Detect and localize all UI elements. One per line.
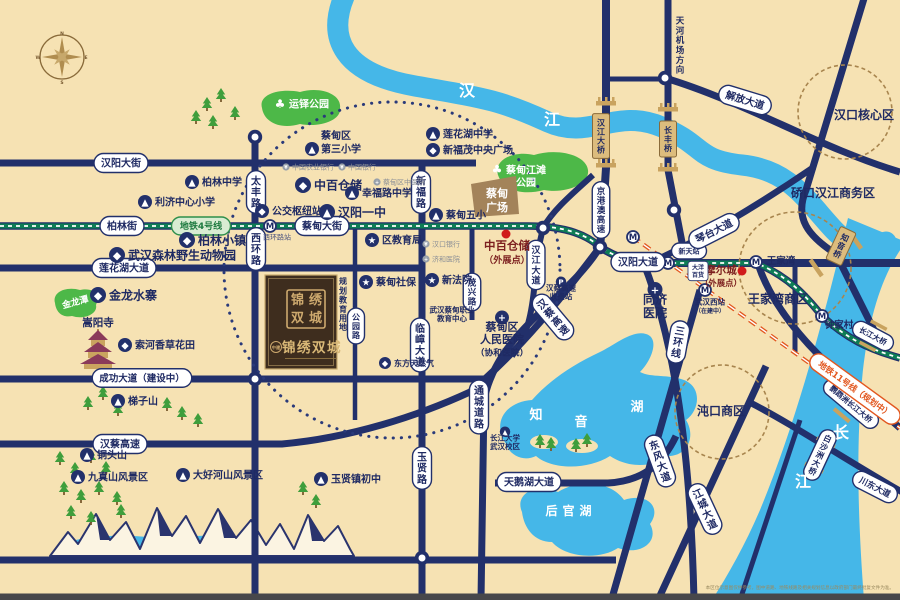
- svg-text:新福茂中央广场: 新福茂中央广场: [443, 144, 513, 157]
- water-label: 长: [833, 423, 850, 442]
- svg-text:柏林街: 柏林街: [107, 220, 137, 233]
- svg-text:汉: 汉: [459, 81, 476, 100]
- shop-icon: ◆: [426, 143, 440, 157]
- svg-text:中国银行: 中国银行: [348, 163, 376, 172]
- poi-label: ▲梯子山: [111, 394, 158, 408]
- goldv-label: 汉江大桥: [593, 114, 610, 159]
- poi-label: ▲柏林中学: [185, 175, 242, 189]
- svg-text:+: +: [424, 257, 428, 263]
- svg-text:★: ★: [368, 236, 376, 247]
- mtn-icon: ▲: [176, 468, 190, 482]
- svg-text:▲: ▲: [348, 189, 356, 200]
- poi-label: ◆金龙水寨: [90, 287, 157, 303]
- svg-text:大好河山风景区: 大好河山风景区: [193, 469, 263, 482]
- svg-text:▲: ▲: [308, 145, 316, 156]
- school-icon: ▲: [426, 127, 440, 141]
- svg-text:钟家村: 钟家村: [825, 319, 854, 331]
- svg-text:汉蔡高速: 汉蔡高速: [100, 438, 140, 451]
- svg-text:蔡甸区: 蔡甸区: [485, 319, 519, 333]
- svg-text:百货: 百货: [692, 271, 704, 279]
- svg-text:江: 江: [795, 472, 811, 491]
- tiny-label: +济和医院: [422, 255, 460, 264]
- svg-text:索河香草花田: 索河香草花田: [135, 339, 195, 352]
- water-label: 知: [529, 407, 542, 423]
- svg-text:▲: ▲: [141, 198, 149, 209]
- svg-text:汉口银行: 汉口银行: [432, 240, 460, 249]
- svg-text:医院: 医院: [643, 305, 667, 320]
- svg-text:蔡甸: 蔡甸: [485, 186, 508, 200]
- svg-text:西环路站: 西环路站: [263, 233, 291, 242]
- svg-text:规划教育用地: 规划教育用地: [338, 276, 348, 332]
- bottom-bar: [0, 594, 900, 600]
- svg-text:运铎公园: 运铎公园: [289, 98, 329, 111]
- svg-text:利济中心小学: 利济中心小学: [155, 196, 215, 209]
- svg-text:★: ★: [428, 276, 436, 287]
- school-icon: ▲: [319, 204, 335, 220]
- tiny-label: 西环路站: [263, 233, 291, 242]
- svg-text:长江大学: 长江大学: [490, 432, 520, 442]
- area-label: 钟家村: [825, 319, 854, 331]
- school-icon: ▲: [345, 186, 359, 200]
- project-logo: 锦 绣 双 城 中建 锦绣双城: [265, 275, 342, 369]
- mtn-icon: ▲: [111, 394, 125, 408]
- project-subline: [285, 358, 337, 359]
- svg-text:西环路: 西环路: [251, 232, 262, 266]
- svg-text:莲花湖大道: 莲花湖大道: [99, 262, 149, 275]
- svg-text:汉阳一中: 汉阳一中: [338, 204, 386, 219]
- svg-text:★: ★: [362, 278, 370, 289]
- goldv-label: 长丰桥: [660, 121, 677, 157]
- svg-text:玉贤镇初中: 玉贤镇初中: [331, 473, 381, 486]
- svg-text:江: 江: [544, 110, 560, 129]
- svg-text:莲花湖中学: 莲花湖中学: [443, 128, 493, 141]
- svg-text:嵩阳寺: 嵩阳寺: [82, 316, 114, 329]
- svg-text:硚口汉江商务区: 硚口汉江商务区: [791, 185, 875, 200]
- svg-text:M: M: [629, 233, 637, 243]
- svg-text:◆: ◆: [258, 207, 266, 218]
- svg-text:教育中心: 教育中心: [436, 313, 467, 323]
- road-label: 成功大道（建设中）: [92, 369, 192, 388]
- map-disclaimer: 本区位示意图仅供参考，图中道路、地铁线路及相关规划信息以政府部门最终批复文件为准…: [706, 584, 894, 591]
- areav-label: 规划教育用地: [338, 276, 348, 332]
- road-label: 汉阳大街: [94, 154, 148, 173]
- svg-text:武汉森林野生动物园: 武汉森林野生动物园: [128, 247, 236, 262]
- shop-icon: ◆: [379, 357, 391, 369]
- svg-text:◆: ◆: [113, 249, 122, 262]
- map-canvas: 锦 绣 双 城 中建 锦绣双城 N: [0, 0, 900, 600]
- svg-text:蔡甸江滩: 蔡甸江滩: [505, 163, 546, 176]
- poi-label: ◆东方天然气: [379, 357, 434, 369]
- poi-label: ★区教育局: [365, 233, 422, 247]
- areav-label: 天河机场方向: [676, 17, 685, 76]
- water-label: 江: [795, 472, 811, 491]
- svg-text:武汉蔡甸职业: 武汉蔡甸职业: [430, 304, 475, 314]
- project-seal-char: 城: [309, 310, 322, 326]
- svg-text:▲: ▲: [114, 397, 122, 408]
- metro-station-icon: M: [627, 231, 639, 243]
- junction-dot: [658, 71, 672, 85]
- svg-text:中百仓储: 中百仓储: [484, 239, 530, 253]
- svg-text:区教育局: 区教育局: [382, 234, 422, 247]
- project-seal-char: 锦: [291, 292, 304, 308]
- water-label: 江: [544, 110, 560, 129]
- compass-letter-e: E: [84, 55, 87, 61]
- svg-text:◆: ◆: [429, 146, 437, 157]
- poi-label: ◆柏林小镇: [179, 232, 246, 248]
- area-label: 王家湾: [767, 255, 796, 267]
- svg-text:▲: ▲: [323, 206, 332, 219]
- star-icon: ★: [425, 273, 439, 287]
- poi-label: ▲九真山风景区: [71, 470, 148, 484]
- svg-text:幸福路中学: 幸福路中学: [362, 187, 412, 200]
- tree-icon: ♣: [492, 163, 503, 177]
- road-label: 京港澳高速: [592, 182, 610, 239]
- project-seal-char: 绣: [309, 292, 323, 308]
- svg-text:汉蔡高速: 汉蔡高速: [546, 282, 576, 292]
- road-label: 地铁4号线: [172, 217, 231, 235]
- junction-dot: [248, 130, 262, 144]
- svg-text:地铁4号线: 地铁4号线: [180, 220, 222, 232]
- svg-text:广场: 广场: [486, 200, 508, 214]
- area-label: 嵩阳寺: [82, 316, 114, 329]
- svg-text:京港澳高速: 京港澳高速: [597, 186, 606, 235]
- svg-text:汉江大桥: 汉江大桥: [597, 117, 606, 154]
- poi-label: ◆公交枢纽站: [255, 204, 322, 218]
- area-label: 沌口商区: [697, 403, 745, 418]
- svg-text:湖: 湖: [630, 400, 643, 415]
- svg-text:柏林中学: 柏林中学: [202, 176, 242, 189]
- red2-label: 中百仓储（外展点）: [484, 239, 530, 266]
- poi-label: ▲莲花湖中学: [426, 127, 493, 141]
- road-label: 汉阳大道: [611, 253, 665, 272]
- junction-dot: [248, 372, 262, 386]
- svg-text:汉阳大道: 汉阳大道: [618, 256, 658, 269]
- poi-label: ▲幸福路中学: [345, 186, 412, 200]
- svg-text:汉口核心区: 汉口核心区: [834, 107, 894, 122]
- svg-text:武汉西站: 武汉西站: [695, 296, 725, 306]
- school-icon: ▲: [305, 142, 319, 156]
- junction-dot: [667, 203, 681, 217]
- compass-letter-w: W: [36, 55, 41, 61]
- svg-text:长丰桥: 长丰桥: [664, 125, 673, 153]
- svg-text:第三小学: 第三小学: [321, 143, 361, 156]
- road-label: 新福路: [412, 171, 431, 214]
- area-label: 王家湾商区: [748, 291, 808, 306]
- park-label: ♣运铎公园: [275, 97, 329, 111]
- svg-text:王家湾商区: 王家湾商区: [748, 291, 808, 306]
- svg-text:天鹅湖大道: 天鹅湖大道: [504, 476, 554, 489]
- water-label: 后官湖: [545, 503, 596, 518]
- junction-dot: [593, 240, 607, 254]
- svg-text:（在建中）: （在建中）: [695, 307, 725, 315]
- road-label: 公园路: [348, 308, 365, 344]
- compass-letter-s: S: [60, 80, 63, 86]
- svg-text:新法院: 新法院: [442, 274, 472, 287]
- junction-dot: [415, 551, 429, 565]
- poi-label: ◆索河香草花田: [118, 338, 195, 352]
- water-label: 音: [574, 414, 587, 430]
- lake-island: [566, 439, 598, 453]
- svg-text:汉江大道: 汉江大道: [531, 244, 541, 286]
- star-icon: ★: [359, 275, 373, 289]
- svg-text:♣: ♣: [492, 163, 503, 177]
- svg-text:蔡甸区中医院: 蔡甸区中医院: [383, 178, 425, 187]
- poi-label: ▲蔡甸五小: [429, 208, 486, 222]
- svg-text:蔡甸区: 蔡甸区: [320, 129, 351, 142]
- svg-text:▲: ▲: [429, 130, 437, 141]
- svg-text:玉贤路: 玉贤路: [417, 451, 428, 485]
- svg-text:收费站: 收费站: [550, 291, 573, 301]
- svg-text:后官湖: 后官湖: [545, 503, 596, 518]
- poi-label: ▲汉阳一中: [319, 204, 386, 220]
- svg-text:▲: ▲: [432, 211, 440, 222]
- svg-text:长: 长: [833, 423, 850, 442]
- svg-text:（外展点）: （外展点）: [484, 254, 530, 266]
- svg-text:♣: ♣: [275, 97, 286, 111]
- road-label: 大洋百货: [688, 261, 708, 280]
- svg-text:九真山风景区: 九真山风景区: [87, 471, 148, 484]
- svg-text:同济: 同济: [643, 291, 668, 306]
- shop-icon: ◆: [118, 338, 132, 352]
- svg-text:柏林小镇: 柏林小镇: [198, 232, 246, 247]
- poi-label: ◆武汉森林野生动物园: [109, 247, 236, 263]
- svg-text:汉阳大街: 汉阳大街: [101, 157, 141, 170]
- svg-text:▲: ▲: [188, 178, 196, 189]
- poi-label: ★新法院: [425, 273, 472, 287]
- svg-text:天河机场方向: 天河机场方向: [676, 17, 685, 76]
- poi-label: ▲铜头山: [80, 448, 127, 462]
- area-label: 汉口核心区: [834, 107, 894, 122]
- svg-text:◆: ◆: [382, 358, 389, 368]
- shop-icon: ◆: [90, 287, 106, 303]
- park2-label: 蔡甸广场: [485, 186, 508, 214]
- svg-text:（协和医院）: （协和医院）: [476, 347, 529, 359]
- svg-text:◆: ◆: [299, 179, 308, 192]
- svg-text:▲: ▲: [179, 471, 187, 482]
- project-seal-char: 双: [291, 311, 304, 326]
- svg-text:蔡甸五小: 蔡甸五小: [445, 209, 486, 222]
- svg-text:+: +: [375, 180, 379, 186]
- location-map: 锦 绣 双 城 中建 锦绣双城 N: [0, 0, 900, 600]
- svg-text:武汉校区: 武汉校区: [490, 441, 520, 451]
- svg-text:中国农业银行: 中国农业银行: [292, 163, 334, 172]
- svg-text:公园: 公园: [516, 177, 536, 189]
- poi-label: 武汉西站（在建中）: [695, 296, 726, 315]
- svg-text:公园路: 公园路: [352, 313, 361, 340]
- school-icon: ▲: [185, 175, 199, 189]
- svg-text:梯子山: 梯子山: [128, 395, 158, 408]
- svg-text:东方天然气: 东方天然气: [394, 358, 434, 368]
- water-label: 汉: [459, 81, 476, 100]
- road-label: 天鹅湖大道: [497, 473, 561, 492]
- svg-text:▲: ▲: [83, 451, 91, 462]
- tree-icon: ♣: [275, 97, 286, 111]
- poi-label: ★蔡甸社保: [359, 275, 417, 289]
- svg-text:铜头山: 铜头山: [97, 449, 127, 462]
- svg-text:M: M: [266, 222, 274, 232]
- svg-text:公交枢纽站: 公交枢纽站: [272, 205, 322, 218]
- sales-point-dot: [502, 230, 511, 239]
- svg-text:王家湾: 王家湾: [767, 255, 796, 267]
- junction-dot: [536, 221, 550, 235]
- svg-text:知: 知: [529, 407, 542, 423]
- area-label: 硚口汉江商务区: [791, 185, 875, 200]
- road-label: 玉贤路: [413, 447, 432, 490]
- bus-icon: ◆: [255, 204, 269, 218]
- school-icon: ▲: [314, 472, 328, 486]
- svg-text:▲: ▲: [317, 475, 325, 486]
- sales-point-dot: [738, 267, 747, 276]
- svg-text:◆: ◆: [94, 289, 103, 302]
- metro-station-icon: M: [264, 220, 276, 232]
- metro-station-icon: M: [750, 256, 762, 268]
- svg-text:摩尔城: 摩尔城: [705, 264, 737, 277]
- shop-icon: ◆: [179, 232, 195, 248]
- svg-text:▲: ▲: [74, 473, 82, 484]
- svg-text:大洋: 大洋: [692, 264, 704, 272]
- compass-letter-n: N: [60, 31, 64, 37]
- svg-text:M: M: [752, 258, 760, 268]
- mtn-icon: ▲: [80, 448, 94, 462]
- school-icon: ▲: [138, 195, 152, 209]
- svg-text:沌口商区: 沌口商区: [697, 403, 745, 418]
- road-label: 蔡甸大街: [295, 217, 349, 236]
- shop-icon: ◆: [109, 247, 125, 263]
- project-name: 锦绣双城: [282, 339, 342, 356]
- road-label: 柏林街: [100, 217, 144, 236]
- mtn-icon: ▲: [71, 470, 85, 484]
- svg-text:音: 音: [574, 414, 587, 430]
- school-icon: ▲: [429, 208, 443, 222]
- svg-text:蔡甸大街: 蔡甸大街: [301, 220, 342, 233]
- svg-text:◆: ◆: [121, 341, 129, 352]
- svg-text:人民医院: 人民医院: [480, 332, 524, 346]
- water-label: 湖: [630, 400, 643, 415]
- road-label: 通城道路: [470, 380, 489, 434]
- svg-text:通城道路: 通城道路: [474, 385, 485, 431]
- brand-name: 中建: [272, 344, 281, 351]
- svg-text:成功大道（建设中）: 成功大道（建设中）: [99, 372, 185, 384]
- poi-label: ▲利济中心小学: [138, 195, 215, 209]
- svg-text:蔡甸社保: 蔡甸社保: [375, 276, 417, 289]
- poi-label: ▲玉贤镇初中: [314, 472, 381, 486]
- star-icon: ★: [365, 233, 379, 247]
- shop-icon: ◆: [295, 177, 311, 193]
- svg-text:济和医院: 济和医院: [432, 255, 460, 264]
- svg-text:◆: ◆: [183, 234, 192, 247]
- svg-text:金龙水寨: 金龙水寨: [108, 287, 157, 302]
